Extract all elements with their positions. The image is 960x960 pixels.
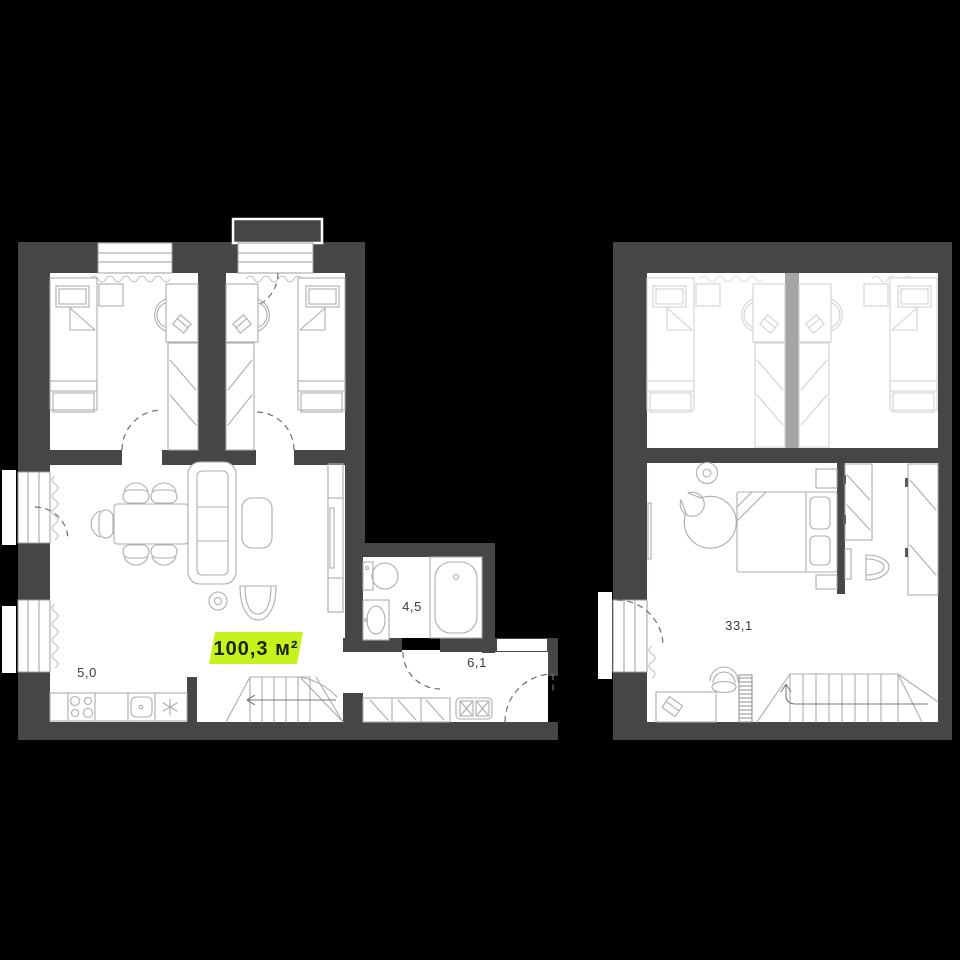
balcony-slab-left-upper bbox=[2, 470, 16, 545]
floor-plan-2: 33,1 bbox=[598, 242, 952, 740]
kitchen-area-label: 5,0 bbox=[77, 665, 97, 680]
bathroom-area-label: 4,5 bbox=[402, 599, 422, 614]
area-badge: 100,3 м² bbox=[209, 632, 303, 664]
kitchen-counter bbox=[50, 693, 187, 721]
balcony-top bbox=[233, 219, 322, 243]
floor2-window bbox=[613, 600, 647, 672]
faded-bed-left bbox=[647, 278, 694, 412]
shoe-bench bbox=[456, 698, 492, 719]
floorplan-image: 5,0 4,5 6,1 100,3 м² bbox=[0, 0, 960, 960]
single-bed bbox=[298, 278, 345, 412]
balcony-slab-floor2 bbox=[598, 592, 612, 679]
passage-interior bbox=[345, 650, 363, 693]
double-bed bbox=[737, 492, 837, 572]
desk bbox=[166, 284, 198, 342]
single-bed bbox=[50, 278, 97, 412]
area-badge-text: 100,3 м² bbox=[213, 638, 298, 660]
sofa bbox=[188, 462, 236, 584]
bedroom-area-label: 33,1 bbox=[725, 618, 753, 633]
hall-niche bbox=[497, 639, 547, 651]
faded-desk-left bbox=[753, 284, 785, 342]
desk bbox=[226, 284, 258, 342]
faded-desk-right bbox=[799, 284, 831, 342]
faded-divider-wall bbox=[785, 273, 799, 448]
floorplan-svg: 5,0 4,5 6,1 100,3 м² bbox=[0, 0, 960, 960]
dining-table bbox=[114, 504, 188, 544]
window-slab-left-lower bbox=[2, 606, 16, 673]
bathtub bbox=[430, 557, 482, 638]
faded-bed-right bbox=[890, 278, 937, 412]
stair-railing bbox=[739, 675, 752, 722]
hall-area-label: 6,1 bbox=[467, 655, 487, 670]
bathroom-sink bbox=[363, 600, 389, 640]
